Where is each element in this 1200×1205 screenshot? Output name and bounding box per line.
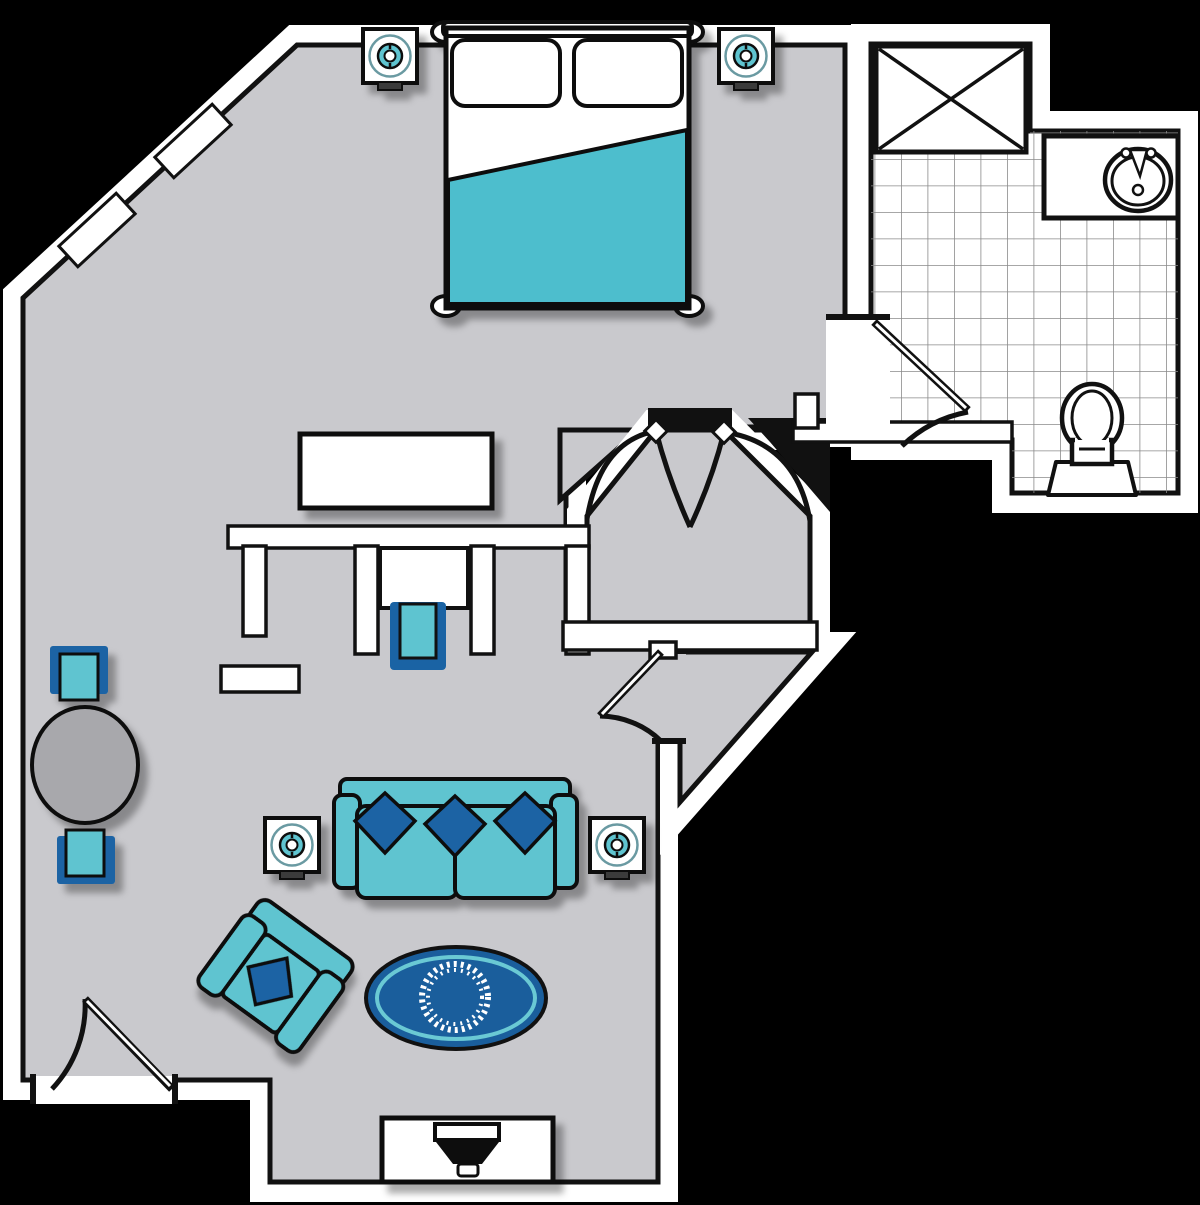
bed-icon bbox=[432, 22, 703, 316]
dining-chair bbox=[50, 646, 108, 700]
sofa-icon bbox=[334, 779, 577, 898]
tv-icon bbox=[435, 1124, 499, 1140]
nightstand-lamp-icon bbox=[719, 29, 773, 90]
side-table-lamp-icon bbox=[265, 818, 319, 879]
dresser-icon bbox=[300, 434, 492, 508]
desk bbox=[380, 548, 468, 608]
rug-icon bbox=[366, 947, 546, 1049]
side-table-lamp-icon bbox=[590, 818, 644, 879]
round-table bbox=[32, 707, 138, 823]
dining-chair bbox=[57, 830, 115, 884]
bathroom-lower-wall bbox=[793, 422, 1012, 442]
bed-pillow bbox=[574, 40, 682, 106]
entry-alcove bbox=[587, 430, 810, 627]
bed-pillow bbox=[452, 40, 560, 106]
floor-plan bbox=[0, 0, 1200, 1205]
entry-bottom-wall bbox=[563, 622, 817, 650]
sink-icon bbox=[1044, 136, 1178, 218]
shower-icon bbox=[876, 46, 1026, 152]
wall-stub bbox=[795, 394, 818, 428]
desk-chair-icon bbox=[390, 602, 446, 670]
nightstand-lamp-icon bbox=[363, 29, 417, 90]
tv-stand-icon bbox=[382, 1118, 553, 1182]
